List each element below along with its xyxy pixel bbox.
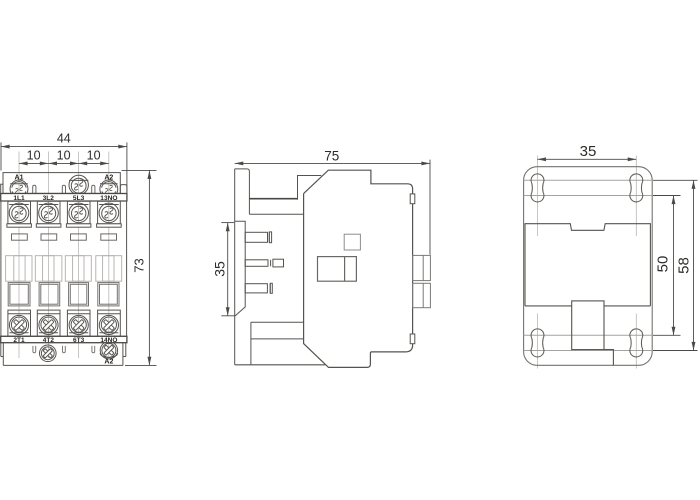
svg-text:50: 50 <box>655 256 672 273</box>
svg-text:A1: A1 <box>15 174 24 181</box>
svg-text:A2: A2 <box>104 358 113 365</box>
svg-text:A2: A2 <box>104 174 113 181</box>
svg-text:35: 35 <box>580 143 597 160</box>
svg-text:10: 10 <box>57 149 71 163</box>
svg-text:10: 10 <box>27 149 41 163</box>
svg-text:44: 44 <box>57 132 71 146</box>
svg-text:73: 73 <box>132 258 147 272</box>
svg-text:6T3: 6T3 <box>73 337 85 344</box>
svg-text:10: 10 <box>87 149 101 163</box>
svg-text:75: 75 <box>324 149 339 164</box>
svg-text:14NO: 14NO <box>100 337 117 344</box>
svg-text:35: 35 <box>211 261 227 277</box>
svg-text:4T2: 4T2 <box>43 337 55 344</box>
svg-text:2T1: 2T1 <box>13 337 25 344</box>
svg-text:58: 58 <box>676 257 693 274</box>
